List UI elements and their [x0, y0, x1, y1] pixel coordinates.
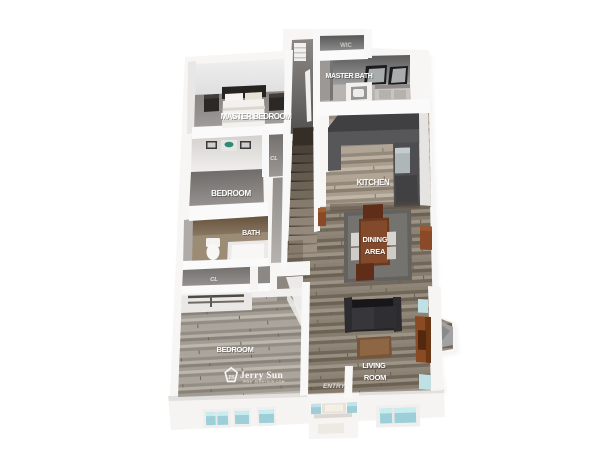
svg-text:ENTRY: ENTRY — [323, 383, 346, 390]
svg-text:BEDROOM: BEDROOM — [216, 345, 253, 354]
svg-text:WIC: WIC — [340, 43, 352, 49]
svg-text:MASTER BATH: MASTER BATH — [325, 73, 372, 80]
svg-text:AREA: AREA — [365, 247, 386, 256]
svg-text:LIVING: LIVING — [362, 361, 386, 370]
svg-text:BATH: BATH — [242, 230, 260, 237]
svg-text:JS: JS — [228, 374, 235, 381]
svg-text:MASTER BEDROOM: MASTER BEDROOM — [221, 112, 293, 121]
svg-text:WWW.JERRYSUN.COM: WWW.JERRYSUN.COM — [243, 380, 285, 384]
svg-text:DINING: DINING — [362, 235, 387, 244]
svg-text:KITCHEN: KITCHEN — [357, 178, 390, 187]
svg-text:CL: CL — [270, 156, 278, 162]
svg-text:BEDROOM: BEDROOM — [211, 189, 251, 198]
svg-text:ROOM: ROOM — [364, 373, 386, 382]
svg-text:CL: CL — [210, 277, 218, 283]
